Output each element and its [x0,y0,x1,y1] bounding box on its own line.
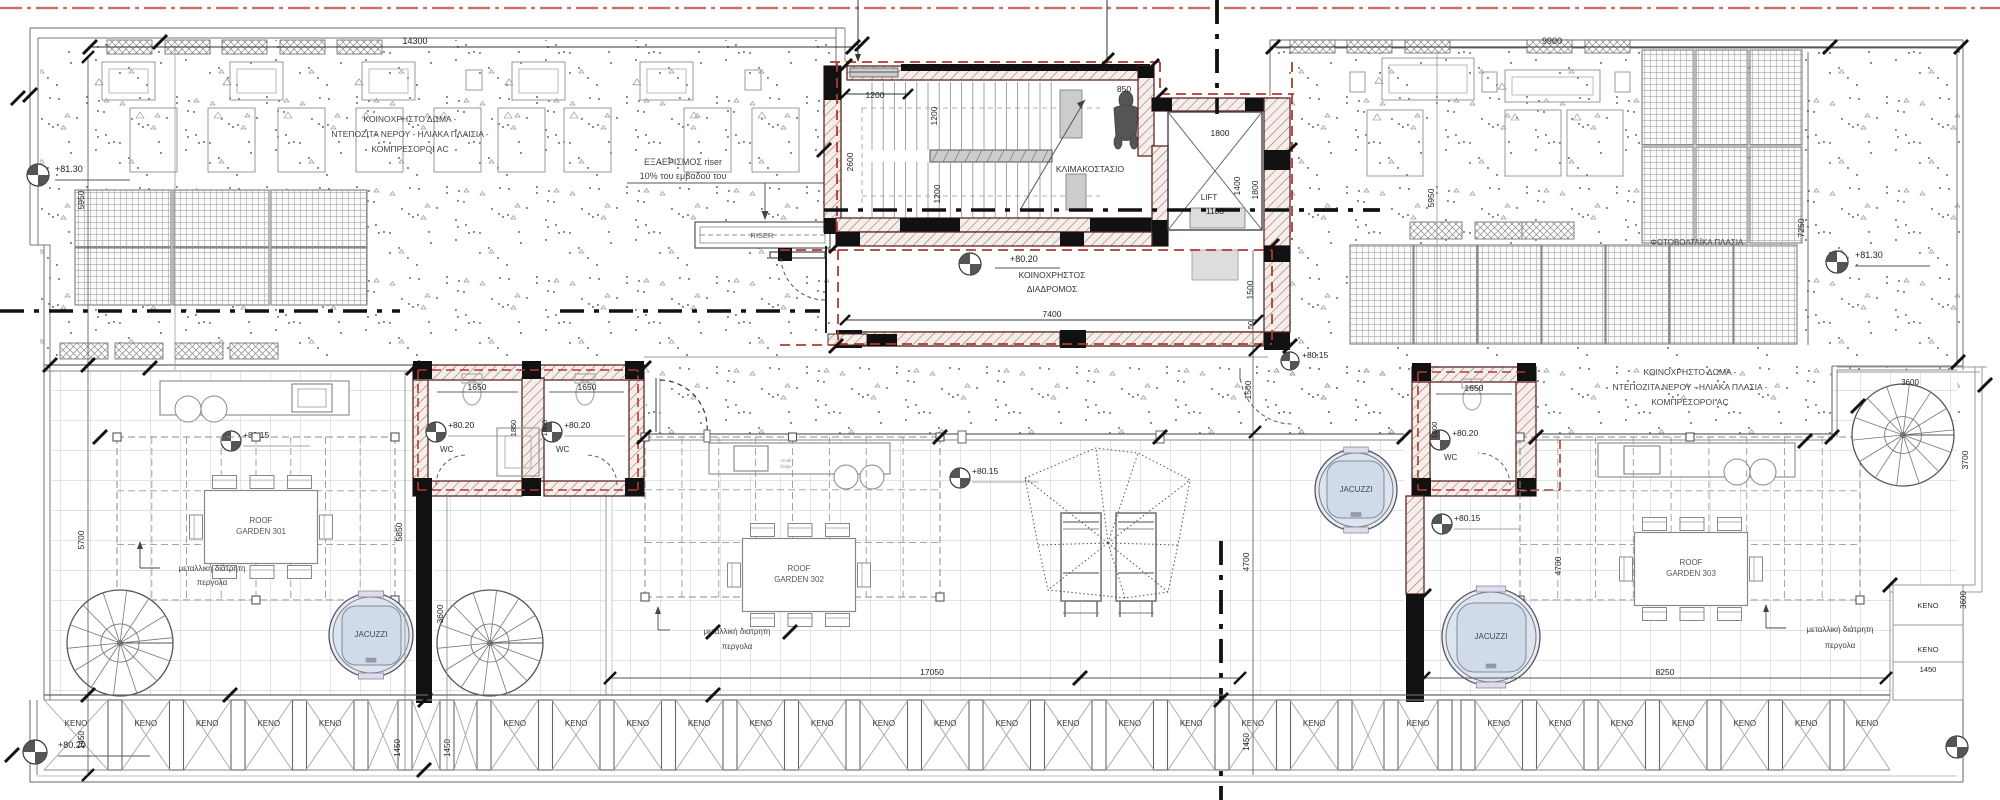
svg-text:WC: WC [556,445,570,454]
svg-text:περγολα: περγολα [197,578,228,587]
svg-text:ΚΕΝΟ: ΚΕΝΟ [1795,719,1818,728]
svg-text:10% του εμβαδού του: 10% του εμβαδού του [640,171,727,181]
svg-text:1650: 1650 [578,382,597,392]
svg-text:1800: 1800 [1250,180,1260,199]
svg-text:ΚΕΝΟ: ΚΕΝΟ [811,719,834,728]
svg-text:JACUZZI: JACUZZI [355,630,388,639]
svg-text:ΚΕΝΟ: ΚΕΝΟ [1917,601,1938,610]
svg-text:1500: 1500 [1245,280,1255,299]
svg-text:ΚΕΝΟ: ΚΕΝΟ [1407,719,1430,728]
svg-text:4700: 4700 [1241,552,1251,571]
svg-text:ΚΕΝΟ: ΚΕΝΟ [1487,719,1510,728]
svg-text:ΚΕΝΟ: ΚΕΝΟ [1549,719,1572,728]
svg-text:+81.30: +81.30 [1855,250,1883,260]
svg-text:2600: 2600 [845,152,855,171]
svg-text:ΚΕΝΟ: ΚΕΝΟ [1057,719,1080,728]
svg-text:ΚΕΝΟ: ΚΕΝΟ [626,719,649,728]
svg-text:1850: 1850 [509,420,518,437]
svg-text:14300: 14300 [402,36,427,46]
svg-text:ΚΕΝΟ: ΚΕΝΟ [565,719,588,728]
svg-text:WC: WC [440,445,454,454]
svg-text:1800: 1800 [1430,422,1439,439]
svg-text:+80.20: +80.20 [1452,428,1479,438]
svg-text:+80.20: +80.20 [1010,254,1038,264]
svg-text:+80.15: +80.15 [1302,350,1329,360]
svg-text:1450: 1450 [1920,665,1937,674]
svg-text:small: small [781,458,792,463]
svg-text:ROOF: ROOF [787,564,810,573]
svg-text:ΚΕΝΟ: ΚΕΝΟ [1856,719,1879,728]
svg-text:περγολα: περγολα [722,642,753,651]
svg-text:ΚΕΝΟ: ΚΕΝΟ [872,719,895,728]
svg-text:9900: 9900 [1542,36,1562,46]
svg-text:8250: 8250 [1656,667,1675,677]
svg-text:ΕΞΑΕΡΙΣΜΟΣ riser: ΕΞΑΕΡΙΣΜΟΣ riser [644,157,722,167]
svg-text:ΚΕΝΟ: ΚΕΝΟ [1118,719,1141,728]
svg-text:ROOF: ROOF [249,516,272,525]
svg-text:fridge: fridge [780,464,792,469]
svg-text:ΔΙΑΔΡΟΜΟΣ: ΔΙΑΔΡΟΜΟΣ [1027,284,1078,294]
svg-text:1200: 1200 [929,106,939,125]
svg-text:JACUZZI: JACUZZI [1475,632,1508,641]
svg-text:ΚΕΝΟ: ΚΕΝΟ [319,719,342,728]
svg-text:5850: 5850 [394,522,404,541]
svg-text:1450: 1450 [393,739,402,757]
svg-text:WC: WC [1444,453,1458,462]
svg-text:+81.30: +81.30 [55,164,83,174]
svg-text:ΚΕΝΟ: ΚΕΝΟ [1917,645,1938,654]
svg-text:ΚΕΝΟ: ΚΕΝΟ [196,719,219,728]
svg-text:μεταλλική διάτρητη: μεταλλική διάτρητη [1807,625,1874,634]
svg-text:ΚΕΝΟ: ΚΕΝΟ [1733,719,1756,728]
svg-text:GARDEN 301: GARDEN 301 [236,527,286,536]
svg-text:3600: 3600 [1959,591,1968,609]
svg-text:ΚΕΝΟ: ΚΕΝΟ [688,719,711,728]
svg-text:GARDEN 303: GARDEN 303 [1666,569,1716,578]
svg-text:ΚΕΝΟ: ΚΕΝΟ [1610,719,1633,728]
svg-text:3600: 3600 [435,604,445,623]
svg-text:ΚΟΙΝΟΧΡΗΣΤΟ ΔΩΜΑ -: ΚΟΙΝΟΧΡΗΣΤΟ ΔΩΜΑ - [364,114,457,124]
svg-text:ΚΕΝΟ: ΚΕΝΟ [503,719,526,728]
svg-text:850: 850 [1117,84,1131,94]
svg-text:ΚΟΜΠΡΕΣΟΡΟΙ AC: ΚΟΜΠΡΕΣΟΡΟΙ AC [1651,397,1728,407]
svg-text:LIFT: LIFT [1201,193,1218,202]
svg-text:5950: 5950 [1426,188,1436,207]
svg-text:μεταλλική διάτρητη: μεταλλική διάτρητη [179,564,246,573]
svg-text:περγολα: περγολα [1825,641,1856,650]
svg-text:7250: 7250 [1796,218,1806,237]
svg-text:1200: 1200 [932,184,942,203]
svg-text:ΦΩΤΟΒΟΛΤΑΪΚΑ ΠΛΑΣΙΑ: ΦΩΤΟΒΟΛΤΑΪΚΑ ΠΛΑΣΙΑ [1651,238,1744,247]
svg-text:+80.15: +80.15 [1454,513,1481,523]
svg-text:+80.20: +80.20 [448,420,475,430]
svg-text:1400: 1400 [1232,176,1242,195]
svg-text:ΚΟΙΝΟΧΡΗΣΤΟΣ: ΚΟΙΝΟΧΡΗΣΤΟΣ [1019,270,1086,280]
svg-text:ROOF: ROOF [1679,558,1702,567]
svg-text:GARDEN 302: GARDEN 302 [774,575,824,584]
svg-text:+80.20: +80.20 [564,420,591,430]
svg-text:4700: 4700 [1553,556,1563,575]
svg-text:ΚΕΝΟ: ΚΕΝΟ [65,719,88,728]
svg-text:1500: 1500 [1243,380,1253,399]
svg-text:ΚΟΜΠΡΕΣΟΡΟΙ AC: ΚΟΜΠΡΕΣΟΡΟΙ AC [371,144,448,154]
svg-text:RISER: RISER [751,231,775,240]
svg-text:ΚΕΝΟ: ΚΕΝΟ [1180,719,1203,728]
svg-text:1450: 1450 [443,739,452,757]
svg-text:ΚΕΝΟ: ΚΕΝΟ [995,719,1018,728]
svg-text:1800: 1800 [1211,128,1230,138]
svg-text:+80.15: +80.15 [972,466,999,476]
svg-text:1650: 1650 [468,382,487,392]
svg-text:1800: 1800 [540,420,549,437]
svg-text:1200: 1200 [866,90,885,100]
svg-text:1450: 1450 [1242,733,1251,751]
svg-text:ΚΕΝΟ: ΚΕΝΟ [1303,719,1326,728]
svg-text:3600: 3600 [1901,378,1919,387]
svg-text:1650: 1650 [1465,383,1484,393]
svg-text:+80.20: +80.20 [58,740,86,750]
svg-text:ΚΟΙΝΟΧΡΗΣΤΟ ΔΩΜΑ -: ΚΟΙΝΟΧΡΗΣΤΟ ΔΩΜΑ - [1644,367,1737,377]
svg-text:5950: 5950 [76,190,86,209]
svg-text:ΚΕΝΟ: ΚΕΝΟ [934,719,957,728]
svg-text:ΚΕΝΟ: ΚΕΝΟ [134,719,157,728]
svg-text:JACUZZI: JACUZZI [1340,485,1373,494]
svg-text:ΚΛΙΜΑΚΟΣΤΑΣΙΟ: ΚΛΙΜΑΚΟΣΤΑΣΙΟ [1056,164,1125,174]
svg-text:ΝΤΕΠΟΖΙΤΑ ΝΕΡΟΥ - ΗΛΙΑΚΑ ΠΛΑΙΣ: ΝΤΕΠΟΖΙΤΑ ΝΕΡΟΥ - ΗΛΙΑΚΑ ΠΛΑΙΣΙΑ - [331,129,488,139]
svg-text:5700: 5700 [76,530,86,549]
svg-text:50: 50 [1246,321,1255,329]
svg-text:17050: 17050 [920,667,944,677]
svg-text:ΚΕΝΟ: ΚΕΝΟ [1672,719,1695,728]
svg-text:ΝΤΕΠΟΖΙΤΑ ΝΕΡΟΥ - ΗΛΙΑΚΑ ΠΛΑΣΙ: ΝΤΕΠΟΖΙΤΑ ΝΕΡΟΥ - ΗΛΙΑΚΑ ΠΛΑΣΙΑ - [1613,382,1768,392]
svg-text:ΚΕΝΟ: ΚΕΝΟ [749,719,772,728]
svg-text:3700: 3700 [1960,450,1970,469]
svg-text:7400: 7400 [1043,309,1062,319]
svg-text:ΚΕΝΟ: ΚΕΝΟ [257,719,280,728]
